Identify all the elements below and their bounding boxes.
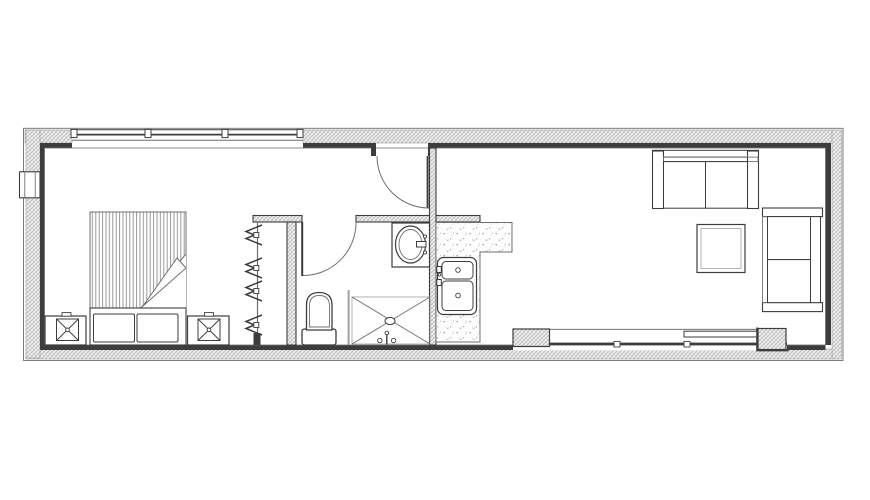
loveseat-cushion (768, 260, 811, 303)
wall-segment (253, 216, 302, 223)
door-jamb (371, 143, 376, 156)
wardrobe-wall (287, 222, 296, 345)
loveseat-back (811, 217, 821, 303)
loveseat-cushion (768, 217, 811, 260)
strip-window (71, 129, 303, 141)
sink-drain (456, 268, 461, 273)
bathroom-door-arc (303, 222, 356, 276)
loveseat (763, 208, 823, 312)
slider-mullion (614, 341, 620, 347)
shower-drain (385, 317, 395, 324)
wall-segment (40, 345, 513, 350)
door-swing-arc (377, 156, 429, 208)
window-post (145, 129, 151, 137)
wardrobe (246, 222, 262, 345)
nightstand-left (45, 313, 86, 345)
kitchen-faucet (437, 267, 442, 273)
sofa-arm (653, 151, 664, 209)
floor-plan-page (0, 0, 870, 500)
wall-segment (428, 143, 826, 148)
shower-valve (378, 338, 382, 342)
window-post (222, 129, 228, 137)
slider-end-block (758, 329, 786, 350)
slider-end-block (513, 329, 550, 347)
loveseat-arm (763, 208, 823, 217)
pillow (137, 314, 178, 342)
window-post (297, 129, 303, 137)
unit-divider-wall (430, 148, 437, 345)
toilet (302, 293, 336, 346)
entry-door (371, 143, 433, 208)
wall-segment (40, 143, 72, 148)
nightstand-right (188, 313, 230, 345)
wall-vent (20, 172, 41, 198)
loveseat-arm (763, 303, 823, 312)
faucet (417, 242, 427, 248)
wall-segment (303, 143, 376, 148)
living-room (653, 150, 823, 311)
toilet-bowl (307, 293, 333, 331)
sofa-arm (748, 151, 759, 209)
bathroom (302, 222, 430, 345)
shower (349, 290, 430, 345)
floor-plan-drawing (0, 0, 870, 500)
vanity-sink (392, 223, 430, 267)
clothes-hangers (246, 225, 262, 335)
bedroom (20, 172, 230, 345)
sofa (653, 150, 759, 208)
sofa-cushion (664, 162, 706, 209)
sofa-back (653, 150, 759, 157)
sliding-glass-door (513, 328, 789, 351)
window-post (71, 129, 77, 137)
wall-segment (40, 143, 45, 345)
pillow (94, 314, 135, 342)
toilet-tank (302, 329, 336, 345)
slider-panel (684, 331, 758, 337)
slider-track (513, 343, 787, 346)
slider-mullion (684, 341, 690, 347)
coffee-table (697, 225, 745, 273)
kitchen (436, 223, 512, 343)
kitchen-faucet (437, 280, 442, 286)
wall-segment (356, 216, 480, 223)
rail-post (254, 333, 261, 345)
wall-segment (826, 143, 832, 345)
sofa-cushion (706, 162, 748, 209)
shower-valve (391, 338, 395, 342)
sink-drain (456, 293, 461, 298)
bed (90, 212, 186, 345)
wall-segment (787, 345, 826, 350)
